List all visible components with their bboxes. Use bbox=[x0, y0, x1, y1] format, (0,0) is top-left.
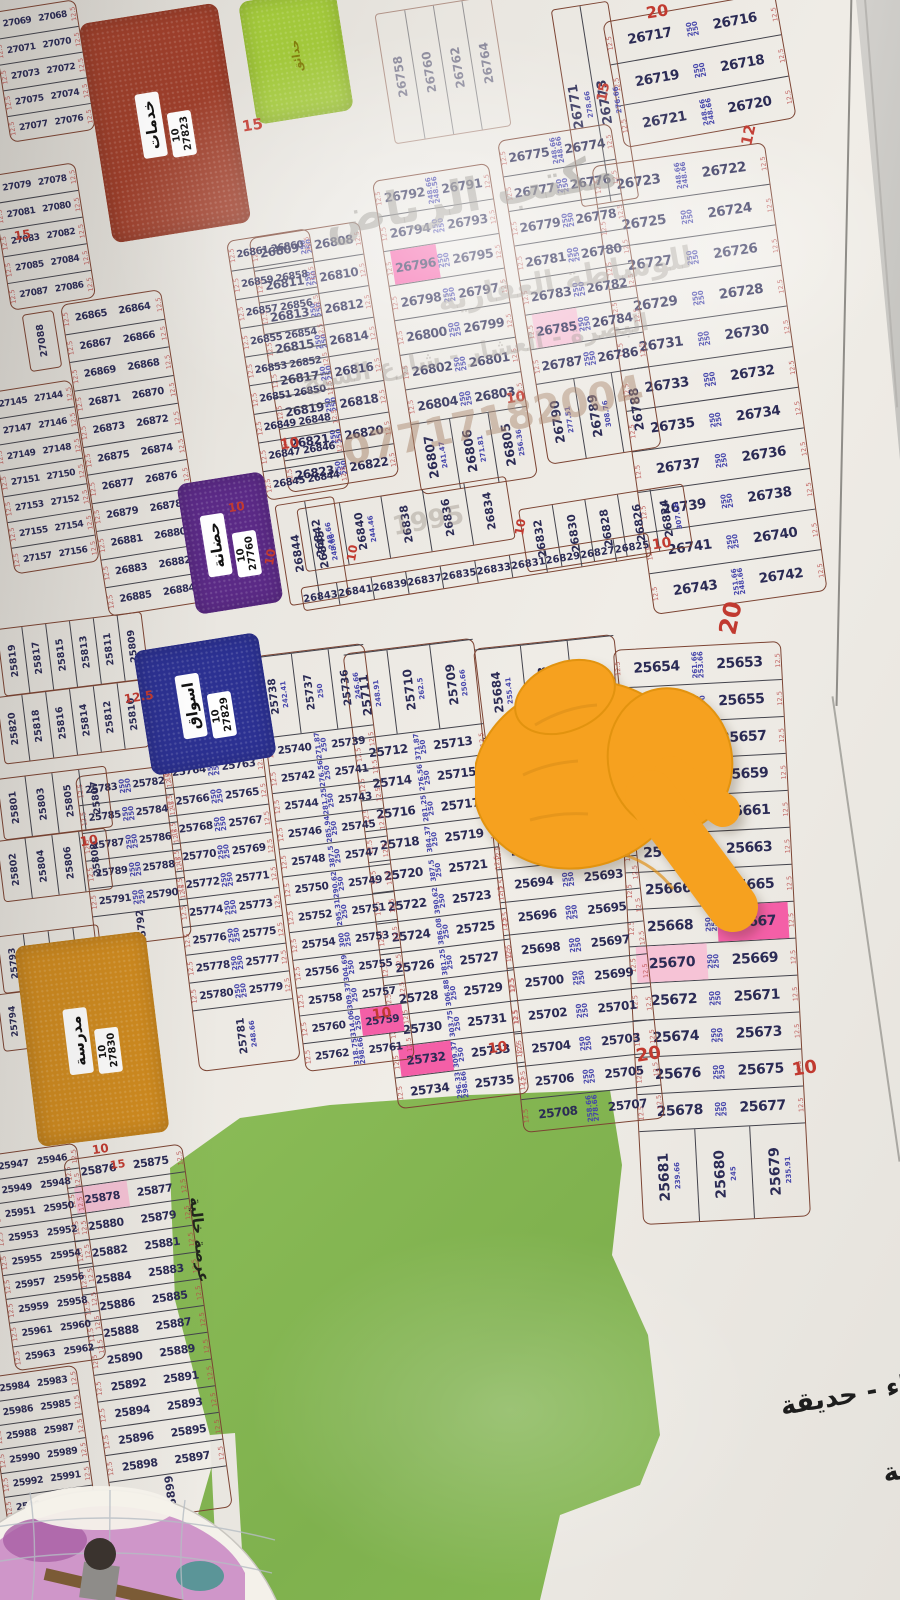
plot-number: 25675 bbox=[737, 1060, 784, 1078]
plot-cell: 27157 bbox=[18, 542, 57, 572]
plot-number: 26787 bbox=[540, 352, 583, 373]
plot-area: 250 bbox=[230, 900, 238, 915]
plot-dim: 12.5 bbox=[284, 978, 292, 993]
plot-dim: 12.5 bbox=[9, 121, 17, 136]
plot-cell: 25769 bbox=[228, 833, 269, 864]
plot-dim: 12.5 bbox=[62, 312, 70, 327]
plot-number: 25671 bbox=[733, 987, 780, 1005]
street-width-label: 10 bbox=[79, 833, 99, 851]
plot-cell: 25707 bbox=[597, 1086, 658, 1124]
plot-dim: 12.5 bbox=[70, 1148, 78, 1163]
plot-cell: 25749 bbox=[343, 865, 388, 897]
street-width-label: 20 bbox=[645, 0, 670, 22]
plot-number: 25957 bbox=[14, 1276, 46, 1291]
plot-dim: 12.5 bbox=[301, 1022, 309, 1037]
plot-dim: 12.5 bbox=[175, 856, 183, 871]
street-width-label: 10 bbox=[487, 1039, 509, 1058]
plot-number: 25891 bbox=[162, 1368, 199, 1386]
plot-dim: 12.5 bbox=[512, 1009, 520, 1024]
plot-number: 25817 bbox=[30, 641, 45, 675]
plot-number: 25786 bbox=[139, 831, 172, 846]
plot-dim: 12.5 bbox=[73, 438, 81, 453]
plot-dim: 12.5 bbox=[359, 263, 367, 278]
plot-number: 26722 bbox=[701, 158, 747, 180]
plot-area: 250 bbox=[698, 62, 706, 77]
plot-cell: 25767 bbox=[225, 805, 266, 836]
plot-number: 26718 bbox=[719, 51, 766, 74]
plot-number: 25729 bbox=[463, 980, 504, 999]
plot-cell: 26855 bbox=[247, 323, 286, 356]
plot-number: 25819 bbox=[6, 644, 21, 678]
plot-number: 25813 bbox=[78, 635, 93, 669]
plot-number: 26786 bbox=[596, 343, 639, 364]
plot-number: 26812 bbox=[323, 296, 364, 316]
plot-cell: 26834 bbox=[463, 477, 514, 545]
plot-number: 25806 bbox=[61, 846, 76, 880]
plot-number: 27077 bbox=[18, 118, 48, 132]
plot-dim: 12.5 bbox=[172, 829, 180, 844]
plot-dim: 12.5 bbox=[388, 898, 396, 913]
plot-number: 26837 bbox=[407, 572, 443, 588]
plot-dim: 12.5 bbox=[228, 248, 236, 263]
plot-number: 25888 bbox=[102, 1322, 139, 1340]
plot-dim: 12.5 bbox=[397, 330, 405, 345]
plot-number: 25755 bbox=[358, 956, 393, 972]
plot-number: 25805 bbox=[61, 784, 76, 818]
plot-cell: 25735 bbox=[466, 1063, 522, 1099]
plot-number: 25880 bbox=[87, 1215, 124, 1233]
plot-dim: 12.5 bbox=[73, 197, 81, 212]
street-width-label: 10 bbox=[227, 499, 246, 515]
plot-number: 25784 bbox=[135, 804, 168, 819]
gardens-block-label: حدائق bbox=[287, 39, 305, 73]
plot-area: 250 bbox=[457, 1047, 465, 1062]
plot-dim: 12.5 bbox=[617, 204, 625, 219]
plot-number: 27156 bbox=[58, 545, 88, 559]
plot-number: 25744 bbox=[284, 796, 319, 812]
street-width-label: 10 bbox=[91, 1141, 110, 1157]
plot-dim: 12.5 bbox=[5, 502, 13, 517]
plot-number: 25749 bbox=[347, 873, 382, 889]
plot-area: 250 bbox=[435, 862, 443, 877]
plot-number: 27153 bbox=[14, 499, 44, 513]
plot-number: 26880 bbox=[153, 526, 187, 542]
plot-number: 25884 bbox=[95, 1268, 132, 1286]
plot-dim: 12.5 bbox=[206, 1365, 214, 1380]
plot-cell: 25704 bbox=[520, 1028, 581, 1066]
plot-number: 26877 bbox=[101, 477, 135, 493]
nursery-block-label: حضانة bbox=[199, 513, 232, 578]
plot-dim: 12.5 bbox=[168, 382, 176, 397]
plot-number: 26758 bbox=[390, 55, 410, 98]
plot-dim: 12.5 bbox=[13, 553, 21, 568]
plot-dim: 12.5 bbox=[84, 1244, 92, 1259]
plot-number: 26740 bbox=[752, 524, 798, 546]
plot-number: 25803 bbox=[35, 788, 50, 822]
plot-dim: 12.5 bbox=[331, 409, 339, 424]
plot-number: 25893 bbox=[166, 1395, 203, 1413]
plot-dim: 12.5 bbox=[71, 369, 79, 384]
plot-cell: 26841 bbox=[336, 578, 374, 605]
plot-dim: 12.5 bbox=[80, 425, 88, 440]
plot-dim: 12.5 bbox=[788, 360, 796, 375]
plot-number: 27084 bbox=[50, 254, 80, 268]
plot-number: 25801 bbox=[7, 791, 22, 825]
plot-cell: 26857 bbox=[242, 294, 281, 327]
plot-area: 250 bbox=[220, 816, 228, 831]
plot-number: 26719 bbox=[634, 66, 681, 89]
gardens-block: حدائق bbox=[238, 0, 354, 125]
globe bbox=[0, 1478, 280, 1600]
plot-dim: 12.5 bbox=[260, 783, 268, 798]
markets-block: اسواق1027829 bbox=[133, 632, 277, 776]
plot-cell: 25746 bbox=[282, 816, 327, 848]
plot-number: 26885 bbox=[119, 589, 153, 605]
plot-area: 250 bbox=[324, 765, 332, 780]
plot-number: 26867 bbox=[79, 336, 113, 352]
plot-dim: 12.5 bbox=[0, 70, 8, 85]
plot-area: 250 bbox=[127, 806, 135, 821]
plot-number: 25788 bbox=[142, 859, 175, 874]
plot-dim: 12.5 bbox=[69, 6, 77, 21]
plot-number: 25956 bbox=[53, 1271, 85, 1286]
plot-dim: 12.5 bbox=[102, 566, 110, 581]
plot-number: 25735 bbox=[474, 1072, 515, 1091]
plot-cell: 25770 bbox=[179, 839, 220, 870]
plot-cell: 25781248.66 bbox=[193, 999, 300, 1071]
plot-number: 27071 bbox=[6, 41, 36, 55]
plot-area: 250 bbox=[719, 1064, 726, 1079]
plot-dim: 12.5 bbox=[69, 169, 77, 184]
plot-dim: 12.5 bbox=[369, 326, 377, 341]
plot-area: 250 bbox=[131, 834, 139, 849]
plot-dim: 12.5 bbox=[312, 294, 320, 309]
plot-number: 25770 bbox=[181, 847, 216, 863]
plot-dim: 12.5 bbox=[73, 1395, 81, 1410]
plot-dim: 12.5 bbox=[106, 1461, 114, 1476]
plot-number: 26825 bbox=[614, 539, 650, 555]
plot-area: 239.66 bbox=[673, 1162, 682, 1189]
plot-dim: 12.5 bbox=[107, 594, 115, 609]
plot-number: 26853 bbox=[254, 360, 288, 376]
plot-cell: 25962 bbox=[58, 1336, 100, 1364]
plot-number: 25743 bbox=[337, 790, 372, 806]
plot-number: 27078 bbox=[37, 173, 67, 187]
plot-number: 25752 bbox=[297, 907, 332, 923]
plot-dim: 12.5 bbox=[811, 522, 819, 537]
plot-number: 25886 bbox=[98, 1295, 135, 1313]
plot-number: 27150 bbox=[46, 467, 76, 481]
plot-number: 25812 bbox=[102, 700, 117, 734]
plot-dim: 12.5 bbox=[638, 342, 646, 357]
plot-area-pair: 318.75298.66 bbox=[351, 1037, 366, 1065]
plot-number: 25673 bbox=[735, 1023, 782, 1041]
plot-cell: 26843 bbox=[301, 583, 339, 610]
pointing-hand-icon bbox=[475, 645, 795, 975]
plot-number: 26868 bbox=[127, 357, 161, 373]
plot-number: 26875 bbox=[97, 449, 131, 465]
plot-number: 27144 bbox=[34, 390, 64, 404]
plot-dim: 12.5 bbox=[195, 1285, 203, 1300]
plot-number: 25877 bbox=[136, 1181, 173, 1199]
plot-strip: 26758267602676226764 bbox=[374, 0, 511, 144]
plot-dim: 12.5 bbox=[85, 453, 93, 468]
plot-dim: 12.5 bbox=[86, 515, 94, 530]
plot-number: 26854 bbox=[284, 326, 318, 342]
plot-cell: 26844 bbox=[304, 460, 343, 493]
plot-dim: 12.5 bbox=[645, 996, 652, 1011]
plot-dim: 12.5 bbox=[508, 978, 516, 993]
plot-dim: 12.5 bbox=[202, 1338, 210, 1353]
plot-dim: 12.5 bbox=[364, 294, 372, 309]
plot-number: 25894 bbox=[114, 1402, 151, 1420]
plot-number: 26796 bbox=[394, 254, 437, 275]
plot-dim: 12.5 bbox=[783, 319, 791, 334]
plot-number: 25986 bbox=[2, 1403, 34, 1418]
plot-cell: 25747 bbox=[339, 837, 384, 869]
photo-of-plot-map: عرصة خالية bbox=[0, 0, 900, 1600]
plot-area: 250 bbox=[446, 954, 454, 969]
plot-area: 250 bbox=[715, 990, 722, 1005]
plot-dim: 12.5 bbox=[199, 1312, 207, 1327]
plot-dim: 12.5 bbox=[0, 1232, 5, 1247]
plot-dim: 12.5 bbox=[277, 922, 285, 937]
plot-number: 25983 bbox=[36, 1374, 68, 1389]
plot-number: 25946 bbox=[36, 1152, 68, 1167]
plot-dim: 12.5 bbox=[798, 1097, 805, 1112]
plot-number: 27146 bbox=[38, 416, 68, 430]
plot-cell: 25776 bbox=[189, 923, 230, 954]
plot-cell: 25766 bbox=[172, 784, 213, 815]
plot-dim: 12.5 bbox=[233, 277, 241, 292]
plot-area: 242.41 bbox=[279, 681, 290, 709]
plot-dim: 12.5 bbox=[165, 773, 173, 788]
plot-number: 25959 bbox=[18, 1300, 50, 1315]
plot-number: 25676 bbox=[654, 1065, 701, 1083]
plot-cell: 25680245 bbox=[694, 1126, 754, 1221]
plot-number: 26742 bbox=[758, 565, 804, 587]
plot-number: 26760 bbox=[419, 50, 439, 93]
plot-dim: 12.5 bbox=[80, 1442, 88, 1457]
plot-number: 25740 bbox=[277, 741, 312, 757]
plot-dim: 12.5 bbox=[246, 363, 254, 378]
plot-cell: 25744 bbox=[279, 788, 324, 820]
plot-dim: 12.5 bbox=[792, 986, 799, 1001]
plot-cell: 26835 bbox=[440, 561, 478, 588]
plot-area: 235.91 bbox=[784, 1157, 793, 1184]
plot-area: 245 bbox=[729, 1166, 738, 1181]
plot-cell: 25779 bbox=[245, 972, 286, 1003]
plot-dim: 12.5 bbox=[649, 1029, 656, 1044]
plot-area: 250 bbox=[717, 1027, 724, 1042]
street-width-label: 10 bbox=[279, 435, 301, 454]
plot-dim: 12.5 bbox=[391, 295, 399, 310]
plot-dim: 12.5 bbox=[284, 883, 292, 898]
plot-cell: 25760 bbox=[306, 1011, 351, 1043]
plot-number: 25962 bbox=[63, 1342, 95, 1357]
plot-number: 25754 bbox=[301, 935, 336, 951]
plot-dim: 12.5 bbox=[771, 238, 779, 253]
plot-cell: 25745 bbox=[336, 809, 381, 841]
plot-cell: 26856 bbox=[277, 288, 316, 321]
plot-dim: 12.5 bbox=[533, 359, 541, 374]
plot-dim: 12.5 bbox=[82, 489, 90, 504]
plot-cell: 25708 bbox=[527, 1093, 588, 1131]
services-block-code: 1027823 bbox=[166, 110, 197, 158]
plot-dim: 12.5 bbox=[11, 1327, 19, 1342]
plot-number: 25708 bbox=[538, 1103, 578, 1121]
plot-number: 26800 bbox=[405, 323, 448, 344]
nursery-block-code: 1027760 bbox=[231, 530, 262, 578]
plot-dim: 12.5 bbox=[177, 438, 185, 453]
plot-number: 26870 bbox=[131, 386, 165, 402]
plot-area: 250 bbox=[686, 209, 694, 224]
plot-number: 26859 bbox=[240, 274, 274, 290]
plot-dim: 12.5 bbox=[173, 410, 181, 425]
plot-cell: 27078 bbox=[32, 164, 72, 196]
plot-number: 26799 bbox=[462, 314, 505, 335]
plot-number: 26834 bbox=[480, 491, 499, 531]
plot-cell: 25677 bbox=[726, 1087, 799, 1127]
plot-dim: 12.5 bbox=[77, 1197, 85, 1212]
plot-number: 25677 bbox=[739, 1097, 786, 1115]
plot-number: 25818 bbox=[30, 709, 45, 743]
plot-dim: 12.5 bbox=[251, 392, 259, 407]
plot-number: 26884 bbox=[162, 583, 196, 599]
plot-dim: 12.5 bbox=[297, 994, 305, 1009]
plot-number: 25762 bbox=[314, 1046, 349, 1062]
plot-number: 25953 bbox=[8, 1229, 40, 1244]
plot-area: 250 bbox=[420, 739, 428, 754]
plot-dim: 12.5 bbox=[99, 1407, 107, 1422]
plot-number: 27147 bbox=[2, 422, 32, 436]
plot-cell: 25754 bbox=[296, 927, 341, 959]
plot-number: 25885 bbox=[151, 1288, 188, 1306]
plot-dim: 12.5 bbox=[520, 1070, 528, 1085]
plot-dim: 12.5 bbox=[785, 90, 793, 105]
plot-number: 25731 bbox=[466, 1011, 507, 1030]
plot-number: 25780 bbox=[199, 986, 234, 1002]
plot-number: 25947 bbox=[0, 1157, 29, 1172]
plot-number: 27152 bbox=[50, 493, 80, 507]
plot-number: 25887 bbox=[155, 1314, 192, 1332]
street-width-label: 10 bbox=[371, 1005, 393, 1024]
plot-area: 250 bbox=[697, 290, 705, 305]
plot-cell: 25702 bbox=[517, 995, 578, 1033]
plot-number: 26717 bbox=[626, 24, 673, 47]
plot-area: 250 bbox=[438, 893, 446, 908]
plot-dim: 12.5 bbox=[169, 801, 177, 816]
plot-area: 250 bbox=[327, 793, 335, 808]
plot-area: 250 bbox=[454, 321, 462, 336]
plot-number: 26858 bbox=[275, 268, 309, 284]
plot-cell: 26854 bbox=[281, 317, 320, 350]
plot-number: 26721 bbox=[641, 108, 688, 131]
plot-number: 25815 bbox=[54, 638, 69, 672]
plot-number: 27075 bbox=[14, 93, 44, 107]
plot-dim: 12.5 bbox=[97, 1339, 105, 1354]
plot-area: 250 bbox=[726, 493, 734, 508]
plot-number: 25761 bbox=[368, 1040, 403, 1056]
plot-area: 250 bbox=[351, 987, 359, 1002]
plot-number: 27157 bbox=[22, 550, 52, 564]
plot-number: 26795 bbox=[451, 245, 494, 266]
plot-number: 26883 bbox=[114, 561, 148, 577]
street-width-label: 10 bbox=[344, 544, 361, 563]
plot-cell: 25753 bbox=[349, 921, 394, 953]
plot-number: 25679 bbox=[766, 1146, 785, 1195]
plot-number: 25950 bbox=[43, 1200, 75, 1215]
plot-cell: 25756 bbox=[299, 955, 344, 987]
plot-dim: 12.5 bbox=[375, 787, 383, 802]
plot-number: 25879 bbox=[140, 1207, 177, 1225]
plot-cell: 25675 bbox=[724, 1050, 797, 1090]
plot-area: 250 bbox=[354, 1015, 362, 1030]
plot-cell: 25748 bbox=[286, 844, 331, 876]
plot-number: 26848 bbox=[298, 412, 332, 428]
plot-number: 26827 bbox=[579, 545, 615, 561]
plot-number: 25758 bbox=[308, 991, 343, 1007]
plot-cell: 25741 bbox=[329, 754, 374, 786]
plot-area: 250 bbox=[691, 20, 699, 35]
plot-dim: 12.5 bbox=[242, 335, 250, 350]
plot-number: 25771 bbox=[235, 869, 270, 885]
plot-number: 25875 bbox=[132, 1154, 169, 1172]
plot-dim: 12.5 bbox=[402, 1009, 410, 1024]
plot-area: 250 bbox=[585, 1035, 592, 1050]
pointing-hand-sticker bbox=[475, 645, 795, 975]
plot-dim: 12.5 bbox=[777, 279, 785, 294]
plot-area: 250 bbox=[223, 844, 231, 859]
plot-dim: 12.5 bbox=[274, 894, 282, 909]
plot-cell: 26829 bbox=[543, 545, 581, 572]
street-width-label: 20 bbox=[635, 1042, 663, 1067]
plot-grid-edge-row: 25738242.412573725025736246.66 bbox=[256, 644, 373, 738]
plot-number: 25710 bbox=[399, 668, 418, 711]
plot-dim: 12.5 bbox=[260, 449, 268, 464]
plot-cell: 26827 bbox=[578, 539, 616, 566]
plot-area: 250 bbox=[237, 955, 245, 970]
plot-number: 26843 bbox=[302, 588, 338, 604]
plot-cell: 26848 bbox=[295, 403, 334, 436]
plot-number: 25748 bbox=[290, 852, 325, 868]
plot-number: 25760 bbox=[311, 1019, 346, 1035]
plot-area: 250 bbox=[316, 683, 326, 698]
plot-number: 26882 bbox=[158, 554, 192, 570]
plot-dim: 12.5 bbox=[770, 6, 778, 21]
plot-cell: 26837 bbox=[405, 567, 443, 594]
plot-number: 25958 bbox=[56, 1295, 88, 1310]
plot-area: 250 bbox=[320, 737, 328, 752]
plot-dim: 12.5 bbox=[651, 586, 659, 601]
plot-area: 278.66 bbox=[591, 1095, 600, 1122]
plot-number: 25802 bbox=[7, 853, 22, 887]
plot-area: 250 bbox=[337, 876, 345, 891]
plot-number: 26860 bbox=[270, 239, 304, 255]
plot-area: 250 bbox=[442, 924, 450, 939]
plot-dim: 12.5 bbox=[511, 221, 519, 236]
plot-area: 250 bbox=[431, 831, 439, 846]
plot-dim: 12.5 bbox=[77, 1419, 85, 1434]
plot-number: 25949 bbox=[1, 1181, 33, 1196]
plot-area: 250 bbox=[124, 778, 132, 793]
plot-area: 250 bbox=[567, 212, 575, 227]
plot-number: 26846 bbox=[302, 440, 336, 456]
plot-cell: 25739 bbox=[326, 726, 371, 758]
plot-dim: 12.5 bbox=[294, 966, 302, 981]
plot-dim: 12.5 bbox=[378, 815, 386, 830]
plot-number: 25951 bbox=[4, 1205, 36, 1220]
